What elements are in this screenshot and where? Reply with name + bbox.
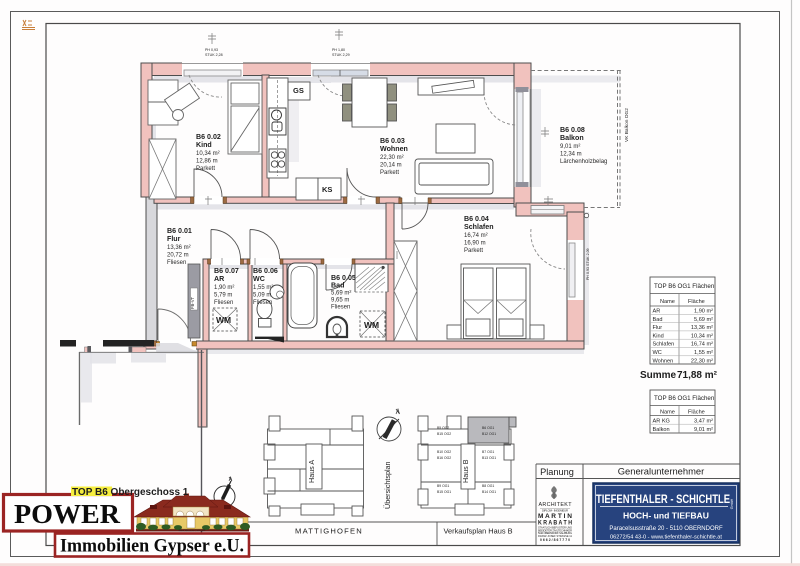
svg-text:MATTIGHOFEN: MATTIGHOFEN — [295, 527, 363, 536]
svg-text:TOP B6 OG1 Flächen: TOP B6 OG1 Flächen — [654, 395, 715, 402]
svg-text:Lärchenholzbelag: Lärchenholzbelag — [560, 159, 607, 165]
svg-text:IMMOBILIEN GYPSER: IMMOBILIEN GYPSER — [179, 529, 206, 533]
svg-text:B6 0.06: B6 0.06 — [253, 267, 278, 275]
svg-text:1,55 m²: 1,55 m² — [253, 285, 273, 291]
svg-text:Name: Name — [660, 299, 675, 305]
svg-text:B5 OG2: B5 OG2 — [437, 426, 449, 430]
svg-text:B14 OG1: B14 OG1 — [482, 490, 496, 494]
svg-text:WM: WM — [216, 315, 231, 325]
svg-text:B6 0.01: B6 0.01 — [167, 227, 192, 235]
svg-text:22,30 m²: 22,30 m² — [691, 358, 713, 364]
svg-text:5,79 m: 5,79 m — [214, 293, 232, 299]
svg-text:12,34 m: 12,34 m — [560, 152, 582, 158]
svg-text:B6 0.08: B6 0.08 — [560, 126, 585, 134]
svg-text:Planung: Planung — [540, 467, 574, 477]
svg-text:Balkon: Balkon — [560, 134, 584, 142]
svg-text:WC: WC — [653, 350, 662, 356]
svg-text:Kind: Kind — [196, 141, 212, 149]
svg-text:B6 0.07: B6 0.07 — [214, 267, 239, 275]
svg-text:06272/54 43-0 - www.tiefenthal: 06272/54 43-0 - www.tiefenthaler-schicht… — [610, 535, 722, 541]
svg-text:12,86 m: 12,86 m — [196, 159, 218, 165]
svg-text:FB-VT: FB-VT — [190, 296, 195, 309]
svg-text:B6 0.02: B6 0.02 — [196, 133, 221, 141]
svg-text:B12 OG1: B12 OG1 — [482, 432, 496, 436]
svg-text:Flur: Flur — [167, 235, 181, 243]
svg-text:5,69 m²: 5,69 m² — [331, 291, 351, 297]
svg-text:Parkett: Parkett — [464, 248, 483, 254]
svg-text:16,74 m²: 16,74 m² — [464, 233, 488, 239]
svg-text:DIPLOM - INGENIEUR: DIPLOM - INGENIEUR — [542, 509, 568, 513]
svg-text:5,69 m²: 5,69 m² — [694, 317, 713, 323]
svg-text:Schlafen: Schlafen — [653, 342, 675, 348]
svg-text:GmbH: GmbH — [730, 498, 734, 509]
svg-text:TOP B6 Obergeschoss 1: TOP B6 Obergeschoss 1 — [72, 487, 189, 498]
svg-text:13,36 m²: 13,36 m² — [691, 325, 713, 331]
svg-text:B6 0.04: B6 0.04 — [464, 215, 489, 223]
svg-text:20,14 m: 20,14 m — [380, 163, 402, 169]
svg-text:Fläche: Fläche — [688, 299, 705, 305]
svg-text:13,36 m²: 13,36 m² — [167, 245, 191, 251]
svg-text:5,09 m: 5,09 m — [253, 293, 271, 299]
svg-text:PH 0,93: PH 0,93 — [205, 48, 218, 52]
svg-text:STUK 2,28: STUK 2,28 — [205, 53, 223, 57]
svg-text:71,88 m²: 71,88 m² — [677, 370, 718, 381]
svg-text:0 6 6 2 / 8 6 7 7 7 0: 0 6 6 2 / 8 6 7 7 7 0 — [540, 538, 570, 542]
svg-text:10,34 m²: 10,34 m² — [691, 333, 713, 339]
svg-text:Immobilien Gypser e.U.: Immobilien Gypser e.U. — [60, 536, 244, 557]
svg-text:Balkon: Balkon — [653, 427, 670, 433]
svg-text:B8 OG1: B8 OG1 — [482, 484, 494, 488]
svg-text:KS: KS — [322, 185, 332, 194]
svg-text:3,47 m²: 3,47 m² — [694, 419, 713, 425]
svg-text:1,90 m²: 1,90 m² — [214, 285, 234, 291]
svg-text:POWER: POWER — [14, 499, 121, 529]
svg-text:B13 OG1: B13 OG1 — [482, 456, 496, 460]
svg-text:Haus B: Haus B — [461, 459, 470, 483]
svg-text:B16 OG2: B16 OG2 — [437, 456, 451, 460]
svg-text:HOCH- und TIEFBAU: HOCH- und TIEFBAU — [623, 511, 709, 521]
svg-text:9,01 m²: 9,01 m² — [694, 427, 713, 433]
svg-text:Bad: Bad — [653, 317, 663, 323]
svg-text:ARCHITEKT: ARCHITEKT — [539, 502, 573, 508]
svg-text:Generalunternehmer: Generalunternehmer — [618, 466, 705, 477]
svg-text:10,34 m²: 10,34 m² — [196, 151, 220, 157]
svg-text:B6 0.03: B6 0.03 — [380, 137, 405, 145]
svg-text:PH 1,80: PH 1,80 — [332, 48, 345, 52]
svg-text:B6 OG1: B6 OG1 — [482, 426, 494, 430]
svg-text:AR KG: AR KG — [653, 419, 670, 425]
svg-text:Schlafen: Schlafen — [464, 223, 494, 231]
svg-text:AR: AR — [214, 275, 224, 283]
svg-text:Kind: Kind — [653, 333, 664, 339]
svg-text:STUK 2,29: STUK 2,29 — [332, 53, 350, 57]
svg-text:Haus A: Haus A — [307, 460, 316, 483]
svg-text:B7 OG1: B7 OG1 — [482, 450, 494, 454]
svg-text:Fliesen: Fliesen — [214, 300, 233, 306]
svg-text:Name: Name — [660, 410, 675, 416]
svg-text:B15 OG2: B15 OG2 — [437, 432, 451, 436]
svg-text:Bad: Bad — [331, 282, 344, 290]
svg-text:Fliesen: Fliesen — [253, 300, 272, 306]
svg-text:Wohnen: Wohnen — [653, 358, 674, 364]
svg-text:Wohnen: Wohnen — [380, 145, 408, 153]
svg-text:B15 OG1: B15 OG1 — [437, 490, 451, 494]
svg-text:TOP B6 OG1 Flächen: TOP B6 OG1 Flächen — [654, 283, 715, 290]
svg-text:B9 OG1: B9 OG1 — [437, 484, 449, 488]
svg-text:1,90 m²: 1,90 m² — [694, 309, 713, 315]
svg-text:22,30 m²: 22,30 m² — [380, 155, 404, 161]
svg-text:Parkett: Parkett — [196, 166, 215, 172]
svg-text:9,65 m: 9,65 m — [331, 298, 349, 304]
svg-text:Fliesen: Fliesen — [331, 305, 350, 311]
svg-text:K R A B A T H: K R A B A T H — [538, 520, 572, 527]
svg-text:9,01 m²: 9,01 m² — [560, 144, 580, 150]
svg-text:16,74 m²: 16,74 m² — [691, 342, 713, 348]
svg-text:Verkaufsplan Haus B: Verkaufsplan Haus B — [443, 527, 512, 536]
svg-text:16,90 m: 16,90 m — [464, 241, 486, 247]
svg-text:GS: GS — [293, 86, 304, 95]
svg-text:20,72 m: 20,72 m — [167, 253, 189, 259]
svg-text:Übersichtsplan: Übersichtsplan — [383, 461, 392, 509]
svg-text:B10 OG2: B10 OG2 — [437, 450, 451, 454]
svg-text:1,55 m²: 1,55 m² — [694, 350, 713, 356]
svg-text:PH 0,93 STUK 2,09: PH 0,93 STUK 2,09 — [586, 248, 590, 280]
svg-text:Flur: Flur — [653, 325, 663, 331]
svg-text:WM: WM — [364, 320, 379, 330]
svg-text:Paracelsusstraße 20 - 5110 OBE: Paracelsusstraße 20 - 5110 OBERNDORF — [609, 526, 723, 532]
svg-text:Parkett: Parkett — [380, 170, 399, 176]
svg-text:WC: WC — [253, 275, 265, 283]
svg-text:VK Balkon OG2: VK Balkon OG2 — [624, 108, 630, 142]
svg-text:TIEFENTHALER - SCHICHTLE: TIEFENTHALER - SCHICHTLE — [596, 494, 730, 506]
svg-text:AR: AR — [653, 309, 661, 315]
svg-text:Fläche: Fläche — [688, 410, 705, 416]
svg-text:Summe: Summe — [640, 370, 677, 381]
svg-text:Fliesen: Fliesen — [167, 260, 186, 266]
